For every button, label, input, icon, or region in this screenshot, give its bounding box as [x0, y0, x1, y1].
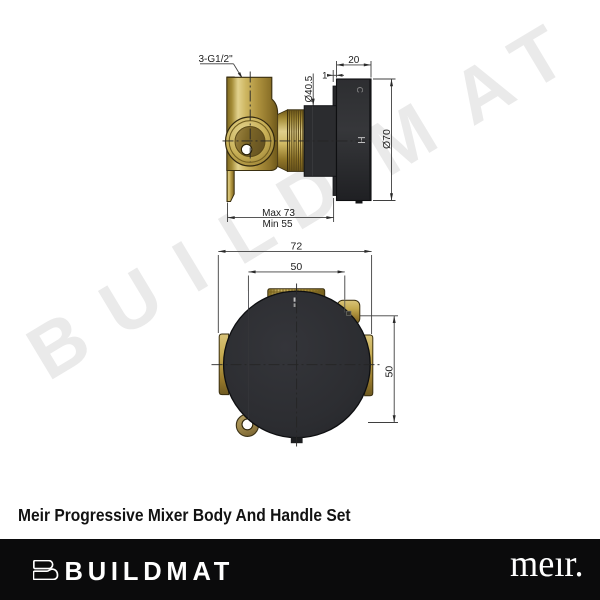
- svg-text:50: 50: [291, 261, 303, 273]
- svg-text:50: 50: [384, 366, 396, 378]
- svg-text:20: 20: [348, 55, 360, 66]
- svg-text:1: 1: [322, 70, 327, 81]
- svg-text:H: H: [355, 136, 367, 144]
- svg-text:C: C: [355, 87, 365, 93]
- svg-text:3-G1/2": 3-G1/2": [199, 54, 234, 65]
- svg-text:Ø70: Ø70: [381, 129, 393, 149]
- svg-text:Max 73: Max 73: [262, 208, 295, 219]
- svg-text:Min 55: Min 55: [262, 219, 292, 230]
- svg-text:Ø40.5: Ø40.5: [304, 75, 315, 102]
- svg-text:72: 72: [291, 240, 303, 252]
